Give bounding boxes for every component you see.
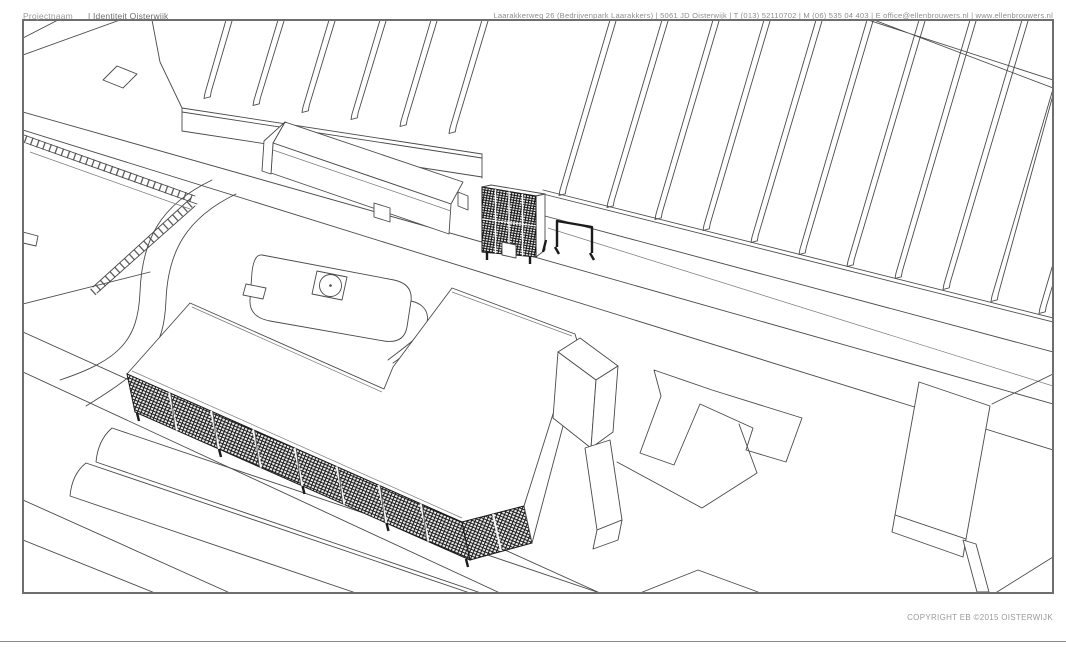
title-block-divider — [0, 641, 1066, 642]
fin-wall — [963, 540, 989, 592]
drawing-sheet: COPYRIGHT EB ©2015 OISTERWIJK Projectnaa… — [0, 0, 1066, 662]
project-title: | Identiteit Oisterwijk — [88, 11, 169, 21]
contact-info: Laarakkerweg 26 (Bedrijvenpark Laarakker… — [493, 11, 1053, 20]
pavilion-door — [502, 242, 516, 258]
portal-frame — [543, 221, 594, 260]
factory-west-edge — [152, 20, 182, 108]
hedge-rows — [24, 135, 197, 293]
main-office-building — [127, 288, 584, 567]
annex-box — [553, 338, 622, 549]
project-label: Projectnaam — [23, 11, 73, 21]
east-building — [892, 374, 1053, 592]
shed-building — [262, 122, 468, 234]
entrance-pavilion — [482, 185, 545, 264]
site-axonometric-drawing — [0, 0, 1066, 662]
ground-figure — [617, 370, 802, 508]
parked-car — [23, 232, 38, 246]
factory-building — [152, 20, 1053, 386]
topleft-building-corner — [23, 20, 137, 88]
small-rhombus-marker — [103, 66, 137, 88]
factory-eave-east — [543, 190, 1053, 322]
ground-strip — [585, 440, 622, 530]
copyright-note: COPYRIGHT EB ©2015 OISTERWIJK — [907, 613, 1053, 622]
